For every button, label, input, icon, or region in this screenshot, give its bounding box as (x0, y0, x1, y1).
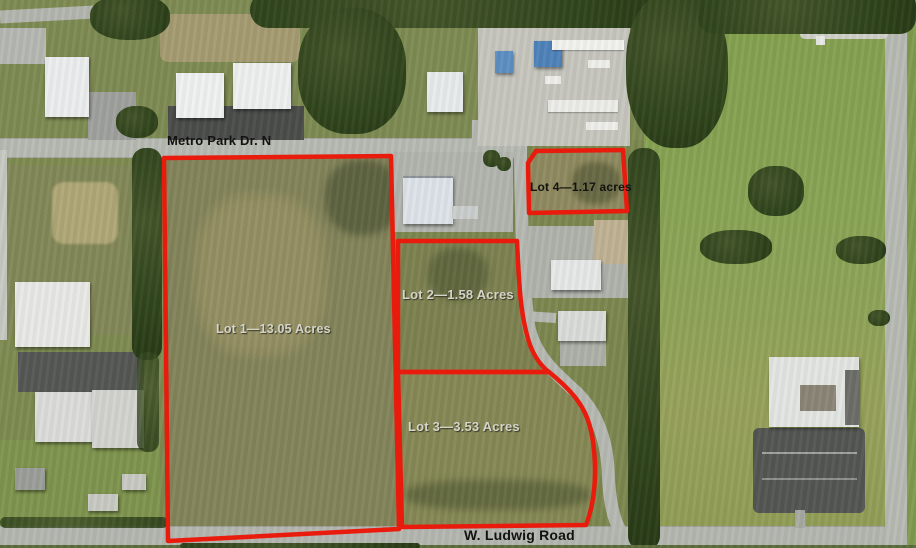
lot2-label: Lot 2—1.58 Acres (402, 287, 514, 302)
lot-boundaries (0, 0, 916, 548)
aerial-lot-map: Metro Park Dr. N W. Ludwig Road Lot 1—13… (0, 0, 916, 548)
road-label-ludwig: W. Ludwig Road (464, 527, 575, 543)
lot3-boundary (398, 372, 595, 527)
lot1-boundary (164, 156, 399, 541)
lot2-boundary (398, 241, 549, 372)
lot1-label: Lot 1—13.05 Acres (216, 322, 331, 336)
lot3-label: Lot 3—3.53 Acres (408, 419, 520, 434)
road-label-metro-park: Metro Park Dr. N (167, 133, 271, 148)
lot4-label: Lot 4—1.17 acres (530, 180, 632, 194)
